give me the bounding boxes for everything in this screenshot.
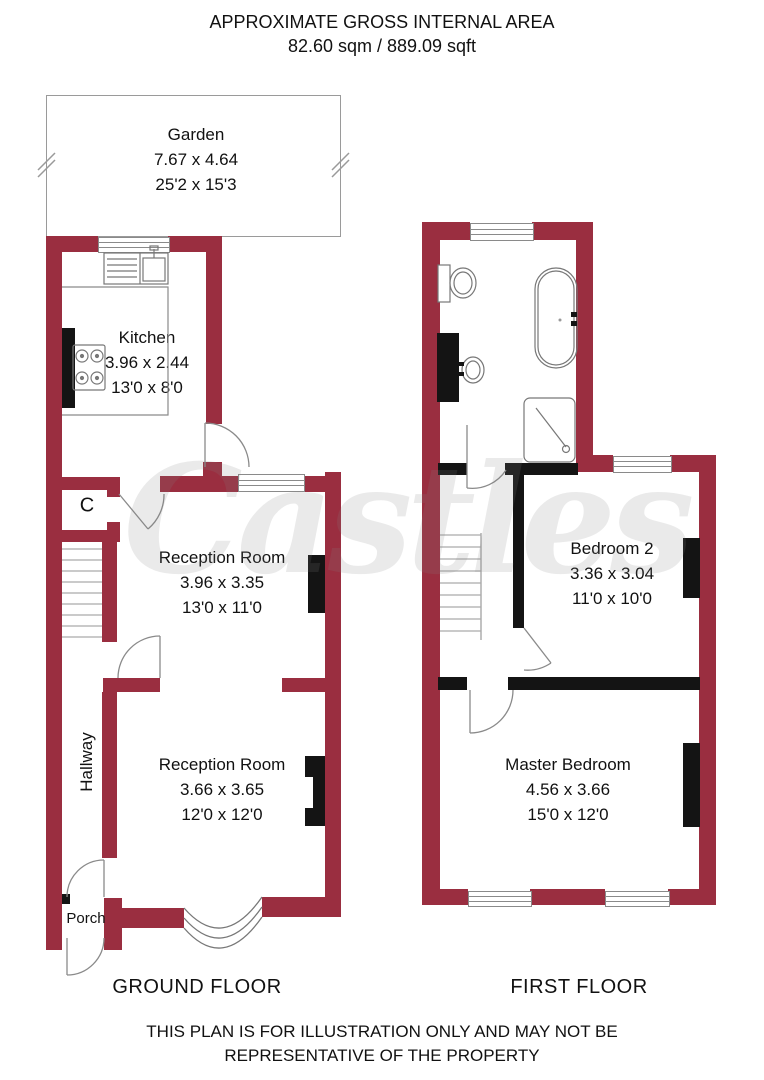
wall-step-left xyxy=(576,455,613,472)
room-dim-imperial: 11'0 x 10'0 xyxy=(570,586,654,611)
chimney-bedroom2 xyxy=(683,538,700,598)
room-dim-metric: 7.67 x 4.64 xyxy=(154,147,238,172)
kitchen-hob-icon xyxy=(73,345,105,390)
first-floor-title: FIRST FLOOR xyxy=(510,976,647,999)
porch-label: Porch xyxy=(66,910,105,927)
room-dim-metric: 4.56 x 3.66 xyxy=(505,777,631,802)
partition-bathroom-a xyxy=(438,463,467,475)
room-dim-imperial: 12'0 x 12'0 xyxy=(159,802,286,827)
wall-ff-left xyxy=(422,222,440,905)
stairs-ground-floor xyxy=(62,549,102,637)
wall-ff-top-left xyxy=(422,222,470,240)
window-kitchen xyxy=(98,237,170,253)
hallway-label: Hallway xyxy=(77,732,97,792)
room-dim-imperial: 15'0 x 12'0 xyxy=(505,802,631,827)
room-name: Reception Room xyxy=(159,752,286,777)
room-dim-metric: 3.96 x 3.35 xyxy=(159,570,286,595)
bay-window xyxy=(184,897,262,948)
wall-ff-right xyxy=(699,455,716,905)
room-dim-metric: 3.66 x 3.65 xyxy=(159,777,286,802)
disclaimer-line1: THIS PLAN IS FOR ILLUSTRATION ONLY AND M… xyxy=(0,1022,764,1042)
partition-bedroom2-left xyxy=(513,463,524,628)
wall-ff-top-right xyxy=(532,222,593,240)
room-dim-imperial: 13'0 x 8'0 xyxy=(105,375,189,400)
wall-cupboard-stub-bottom xyxy=(107,522,120,542)
partition-master-a xyxy=(438,677,467,690)
chimney-bathroom xyxy=(437,333,459,402)
wall-porch-right xyxy=(104,898,122,950)
page-title: APPROXIMATE GROSS INTERNAL AREA xyxy=(0,12,764,33)
wall-reception1-top-left xyxy=(160,476,238,492)
wall-reception-divider-left xyxy=(103,678,160,692)
window-master-right xyxy=(605,891,670,907)
window-master-left xyxy=(468,891,532,907)
room-dim-imperial: 13'0 x 11'0 xyxy=(159,595,286,620)
door-bedroom2 xyxy=(524,628,551,670)
room-dim-imperial: 25'2 x 15'3 xyxy=(154,172,238,197)
wall-bathroom-right xyxy=(576,240,593,463)
disclaimer-line2: REPRESENTATIVE OF THE PROPERTY xyxy=(0,1046,764,1066)
room-dim-metric: 3.96 x 2.44 xyxy=(105,350,189,375)
partition-master-b xyxy=(508,677,700,690)
door-bathroom xyxy=(467,425,506,488)
kitchen-units-block xyxy=(62,328,75,408)
master-bedroom-label: Master Bedroom 4.56 x 3.66 15'0 x 12'0 xyxy=(505,752,631,827)
wall-ff-bottom-a xyxy=(422,889,468,905)
wall-kitchen-right xyxy=(206,252,222,424)
basin-icon xyxy=(458,357,484,383)
fireplace-inset xyxy=(305,777,313,808)
room-name: Kitchen xyxy=(105,325,189,350)
floorplan-page: APPROXIMATE GROSS INTERNAL AREA 82.60 sq… xyxy=(0,0,764,1080)
chimney-reception1 xyxy=(308,555,325,613)
bedroom2-label: Bedroom 2 3.36 x 3.04 11'0 x 10'0 xyxy=(570,536,654,611)
door-porch xyxy=(67,860,104,897)
door-master-bedroom xyxy=(470,690,513,733)
ground-floor-title: GROUND FLOOR xyxy=(112,976,281,999)
room-name: Master Bedroom xyxy=(505,752,631,777)
door-reception-divide xyxy=(118,636,160,678)
toilet-icon xyxy=(438,265,476,302)
door-kitchen-side xyxy=(205,423,249,467)
room-dim-metric: 3.36 x 3.04 xyxy=(570,561,654,586)
wall-cupboard-stub-top xyxy=(107,477,120,497)
window-bedroom2 xyxy=(613,456,672,473)
room-name: Garden xyxy=(154,122,238,147)
room-name: Bedroom 2 xyxy=(570,536,654,561)
wall-bay-right xyxy=(262,897,341,917)
porch-threshold xyxy=(62,894,70,904)
wall-reception-divider-right xyxy=(282,678,341,692)
page-subtitle-area: 82.60 sqm / 889.09 sqft xyxy=(0,36,764,57)
kitchen-label: Kitchen 3.96 x 2.44 13'0 x 8'0 xyxy=(105,325,189,400)
reception2-label: Reception Room 3.66 x 3.65 12'0 x 12'0 xyxy=(159,752,286,827)
garden-label: Garden 7.67 x 4.64 25'2 x 15'3 xyxy=(154,122,238,197)
cupboard-label: C xyxy=(80,495,94,518)
wall-ff-bottom-b xyxy=(530,889,605,905)
bathtub-icon xyxy=(535,268,577,368)
wall-stairs-right xyxy=(102,542,117,642)
window-bathroom xyxy=(470,223,534,241)
wall-ff-bottom-c xyxy=(668,889,716,905)
stairs-first-floor xyxy=(440,533,481,640)
door-kitchen-reception xyxy=(119,494,164,529)
wall-kitchen-top-right xyxy=(168,236,222,252)
wall-kitchen-top-left xyxy=(46,236,98,252)
door-front-entrance xyxy=(67,938,104,975)
reception1-label: Reception Room 3.96 x 3.35 13'0 x 11'0 xyxy=(159,545,286,620)
wall-gf-right xyxy=(325,472,341,912)
shower-icon xyxy=(524,398,575,462)
wall-gf-left xyxy=(46,236,62,950)
window-reception1 xyxy=(238,474,305,492)
chimney-master xyxy=(683,743,700,827)
room-name: Reception Room xyxy=(159,545,286,570)
wall-hallway-right xyxy=(102,692,117,858)
